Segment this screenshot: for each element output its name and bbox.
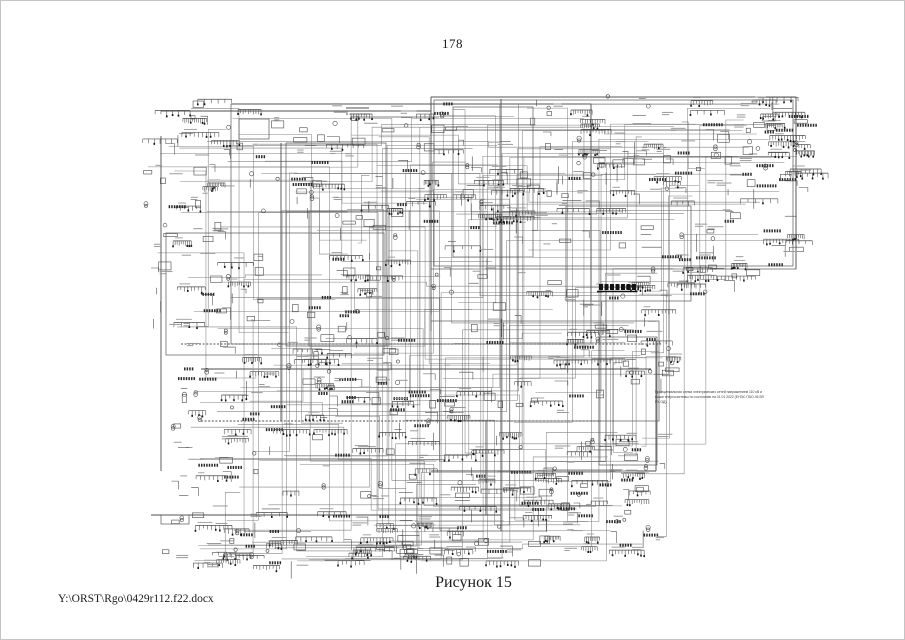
annotation-line-2: выше энергосистемы по состоянию на 01.01… xyxy=(655,395,767,405)
document-page: 178 Принципиальная схема электрических с… xyxy=(0,0,905,640)
annotation-note: Принципиальная схема электрических сетей… xyxy=(655,390,767,405)
schematic-svg xyxy=(1,1,905,640)
figure-caption: Рисунок 15 xyxy=(41,574,905,592)
schematic-diagram xyxy=(1,1,905,640)
file-path: Y:\ORST\Rgo\0429r112.f22.docx xyxy=(58,593,214,605)
